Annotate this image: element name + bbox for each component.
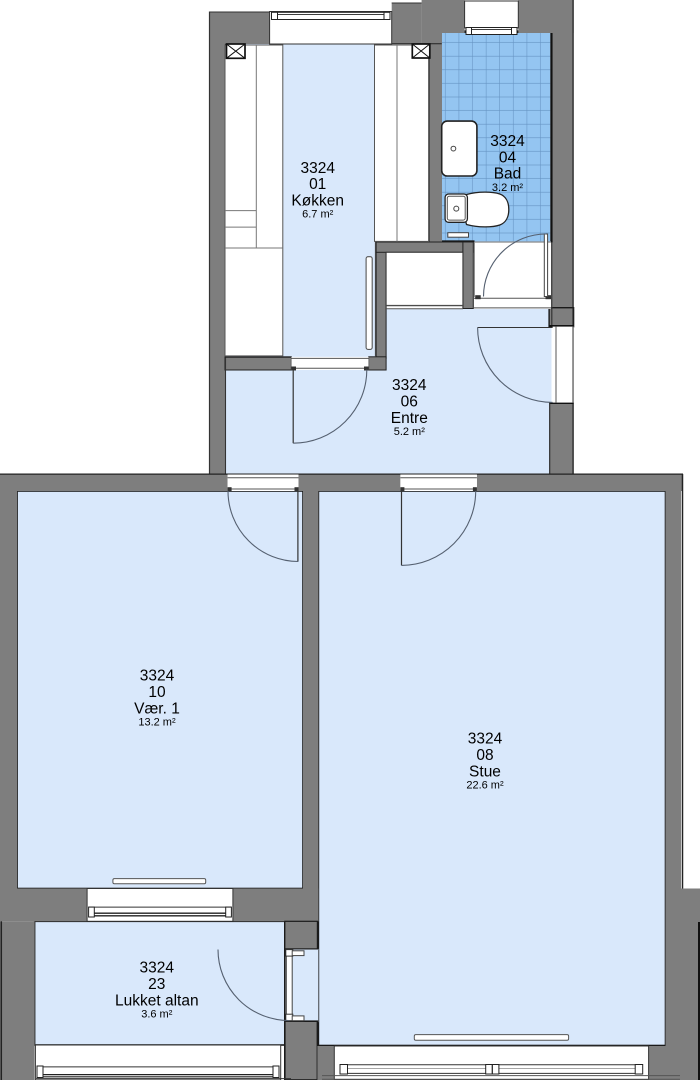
svg-text:3324: 3324 [490, 133, 525, 150]
svg-text:6.7 m²: 6.7 m² [302, 209, 334, 221]
svg-text:06: 06 [401, 393, 418, 410]
svg-text:22.6 m²: 22.6 m² [466, 780, 504, 792]
svg-text:04: 04 [499, 149, 517, 166]
svg-text:3324: 3324 [468, 731, 503, 748]
svg-text:3.6 m²: 3.6 m² [141, 1009, 173, 1021]
svg-text:Bad: Bad [494, 166, 522, 183]
svg-text:13.2 m²: 13.2 m² [138, 716, 176, 728]
svg-text:Stue: Stue [469, 763, 501, 780]
svg-text:23: 23 [148, 976, 165, 993]
svg-text:Køkken: Køkken [291, 193, 344, 210]
svg-text:Vær. 1: Vær. 1 [134, 700, 180, 717]
svg-text:Entre: Entre [391, 410, 428, 427]
svg-text:3324: 3324 [300, 160, 335, 177]
svg-text:3324: 3324 [140, 960, 175, 977]
svg-text:3.2 m²: 3.2 m² [492, 182, 524, 194]
svg-text:Lukket altan: Lukket altan [115, 992, 199, 1009]
svg-text:3324: 3324 [392, 377, 427, 394]
svg-text:3324: 3324 [140, 668, 175, 685]
svg-text:01: 01 [309, 176, 326, 193]
svg-text:10: 10 [148, 684, 166, 701]
svg-text:5.2 m²: 5.2 m² [394, 426, 426, 438]
svg-text:08: 08 [476, 747, 493, 764]
